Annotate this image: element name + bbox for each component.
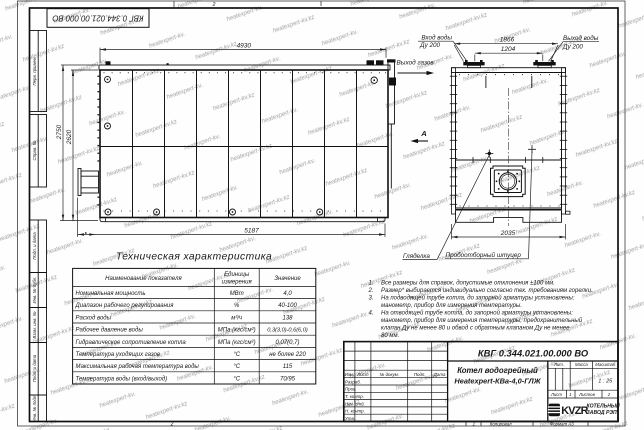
svg-text:Heatexpert-КВа-4,0-ГЛЖ: Heatexpert-КВа-4,0-ГЛЖ — [454, 377, 541, 386]
svg-text:Номинальная мощность: Номинальная мощность — [76, 291, 146, 297]
svg-text:Диапазон рабочего регулировани: Диапазон рабочего регулирования — [75, 303, 175, 309]
svg-text:2620: 2620 — [66, 129, 73, 145]
svg-text:°С: °С — [233, 352, 240, 358]
svg-text:1204: 1204 — [501, 46, 516, 53]
svg-text:Выход воды: Выход воды — [563, 34, 599, 42]
svg-text:Подп. и дата: Подп. и дата — [32, 354, 37, 382]
svg-text:Максимальная рабочая температу: Максимальная рабочая температура воды — [76, 364, 200, 370]
svg-text:4930: 4930 — [237, 43, 252, 50]
svg-text:На подводящей трубе котла, до: На подводящей трубе котла, до запорной а… — [381, 295, 575, 302]
svg-text:Взам. инв. №: Взам. инв. № — [32, 311, 37, 338]
svg-text:°С: °С — [233, 376, 240, 382]
svg-text:Листов: Листов — [578, 392, 595, 397]
svg-text:Подп.: Подп. — [414, 372, 426, 377]
svg-text:Разраб.: Разраб. — [345, 379, 361, 384]
svg-text:Лит.: Лит. — [553, 362, 564, 367]
svg-text:На отводящей трубе котла, до з: На отводящей трубе котла, до запорной ар… — [381, 310, 573, 317]
svg-text:клапан Ду не менее 80 и обвод: клапан Ду не менее 80 и обвод с обратным… — [381, 326, 570, 332]
svg-text:манометр, прибор для измерения: манометр, прибор для измерения температу… — [381, 303, 522, 309]
svg-text:Справ. №: Справ. № — [32, 140, 37, 160]
svg-text:70/95: 70/95 — [280, 376, 296, 382]
svg-text:2: 2 — [212, 2, 216, 8]
svg-text:80 мм.: 80 мм. — [381, 333, 399, 339]
svg-text:м³/ч: м³/ч — [231, 315, 242, 321]
svg-text:1 : 25: 1 : 25 — [598, 378, 613, 384]
svg-text:4.: 4. — [369, 311, 374, 317]
svg-text:А: А — [420, 129, 426, 138]
svg-text:%: % — [234, 303, 240, 309]
svg-text:Копировал: Копировал — [490, 422, 512, 427]
svg-text:Лист: Лист — [356, 372, 369, 377]
svg-text:КВГ 0.344.021.00.000 ВО: КВГ 0.344.021.00.000 ВО — [52, 13, 143, 22]
svg-text:Дата: Дата — [433, 372, 446, 377]
svg-text:Формат А3: Формат А3 — [550, 422, 575, 427]
svg-text:Ду 200: Ду 200 — [562, 44, 583, 51]
svg-text:1866: 1866 — [500, 37, 515, 44]
svg-text:Значение: Значение — [274, 276, 301, 282]
svg-text:Инв. № дубл.: Инв. № дубл. — [32, 276, 37, 303]
svg-text:Гляделка: Гляделка — [403, 252, 430, 260]
svg-text:не более 220: не более 220 — [269, 352, 306, 358]
svg-text:3.: 3. — [369, 296, 374, 302]
svg-text:Т. контр.: Т. контр. — [345, 394, 364, 399]
svg-text:2035: 2035 — [500, 230, 516, 237]
svg-text:Масштаб: Масштаб — [595, 362, 616, 367]
svg-text:115: 115 — [283, 364, 293, 370]
svg-text:2.: 2. — [368, 288, 374, 294]
svg-text:ЗАВОД РЭП: ЗАВОД РЭП — [587, 410, 618, 416]
svg-text:KVZR: KVZR — [561, 405, 588, 417]
svg-text:0,3(3,0)-0,6(6,0): 0,3(3,0)-0,6(6,0) — [267, 328, 308, 334]
svg-text:Вход воды: Вход воды — [421, 34, 452, 42]
svg-text:Ду 200: Ду 200 — [419, 42, 440, 49]
svg-text:Все размеры для справок, допус: Все размеры для справок, допустимые откл… — [381, 281, 555, 287]
svg-text:0,07(0,7): 0,07(0,7) — [275, 340, 299, 346]
svg-text:Н. контр.: Н. контр. — [345, 409, 365, 414]
svg-text:Пробоотборный штуцер: Пробоотборный штуцер — [446, 251, 522, 259]
svg-text:МПа (кгс/см²): МПа (кгс/см²) — [218, 328, 256, 334]
svg-text:Подп. и дата: Подп. и дата — [32, 232, 37, 260]
svg-text:Пров.: Пров. — [345, 387, 357, 392]
svg-text:Инв. № подл.: Инв. № подл. — [32, 394, 37, 421]
svg-text:Рабочее давление воды: Рабочее давление воды — [76, 328, 144, 334]
svg-text:КОТЕЛЬНЫЙ: КОТЕЛЬНЫЙ — [587, 401, 620, 409]
svg-text:Выход газов: Выход газов — [397, 59, 435, 67]
svg-text:138: 138 — [282, 315, 293, 321]
svg-text:5187: 5187 — [244, 228, 259, 235]
svg-text:4,0: 4,0 — [283, 291, 292, 297]
svg-text:40-100: 40-100 — [278, 303, 297, 309]
svg-text:№ докум.: № докум. — [380, 372, 399, 377]
svg-text:°С: °С — [233, 364, 240, 370]
svg-text:Нач. отд.: Нач. отд. — [345, 401, 365, 406]
svg-text:Лист: Лист — [550, 392, 562, 397]
svg-text:измерения: измерения — [222, 279, 253, 285]
svg-text:Гидравлическое сопротивление к: Гидравлическое сопротивление котла — [76, 340, 187, 346]
svg-text:2750: 2750 — [56, 124, 63, 140]
svg-text:Утв.: Утв. — [345, 416, 355, 421]
svg-text:Масса: Масса — [575, 362, 588, 367]
svg-text:2: 2 — [170, 422, 174, 428]
svg-text:Температура уходящих газов: Температура уходящих газов — [76, 352, 161, 358]
svg-text:Перв. примен.: Перв. примен. — [32, 56, 37, 85]
svg-text:Котел водогрейный: Котел водогрейный — [457, 366, 538, 375]
svg-text:манометр, прибор для измерения: манометр, прибор для измерения температу… — [381, 317, 583, 324]
svg-text:МВт: МВт — [230, 291, 244, 297]
svg-text:Температура воды (вход/выход): Температура воды (вход/выход) — [76, 376, 168, 382]
svg-text:Наименование показателя: Наименование показателя — [105, 276, 182, 282]
svg-text:КВГ 0.344.021.00.000 ВО: КВГ 0.344.021.00.000 ВО — [478, 347, 589, 358]
svg-text:МПа (кгс/см²): МПа (кгс/см²) — [218, 340, 256, 346]
svg-text:1.: 1. — [369, 281, 374, 287]
svg-text:Техническая характеристика: Техническая характеристика — [116, 252, 272, 263]
svg-text:Единицы: Единицы — [224, 272, 250, 278]
svg-text:Изм.: Изм. — [345, 372, 354, 377]
svg-text:Расход воды: Расход воды — [76, 315, 112, 321]
svg-text:Размер* выбирается индивидуаль: Размер* выбирается индивидуально согласн… — [381, 288, 593, 294]
